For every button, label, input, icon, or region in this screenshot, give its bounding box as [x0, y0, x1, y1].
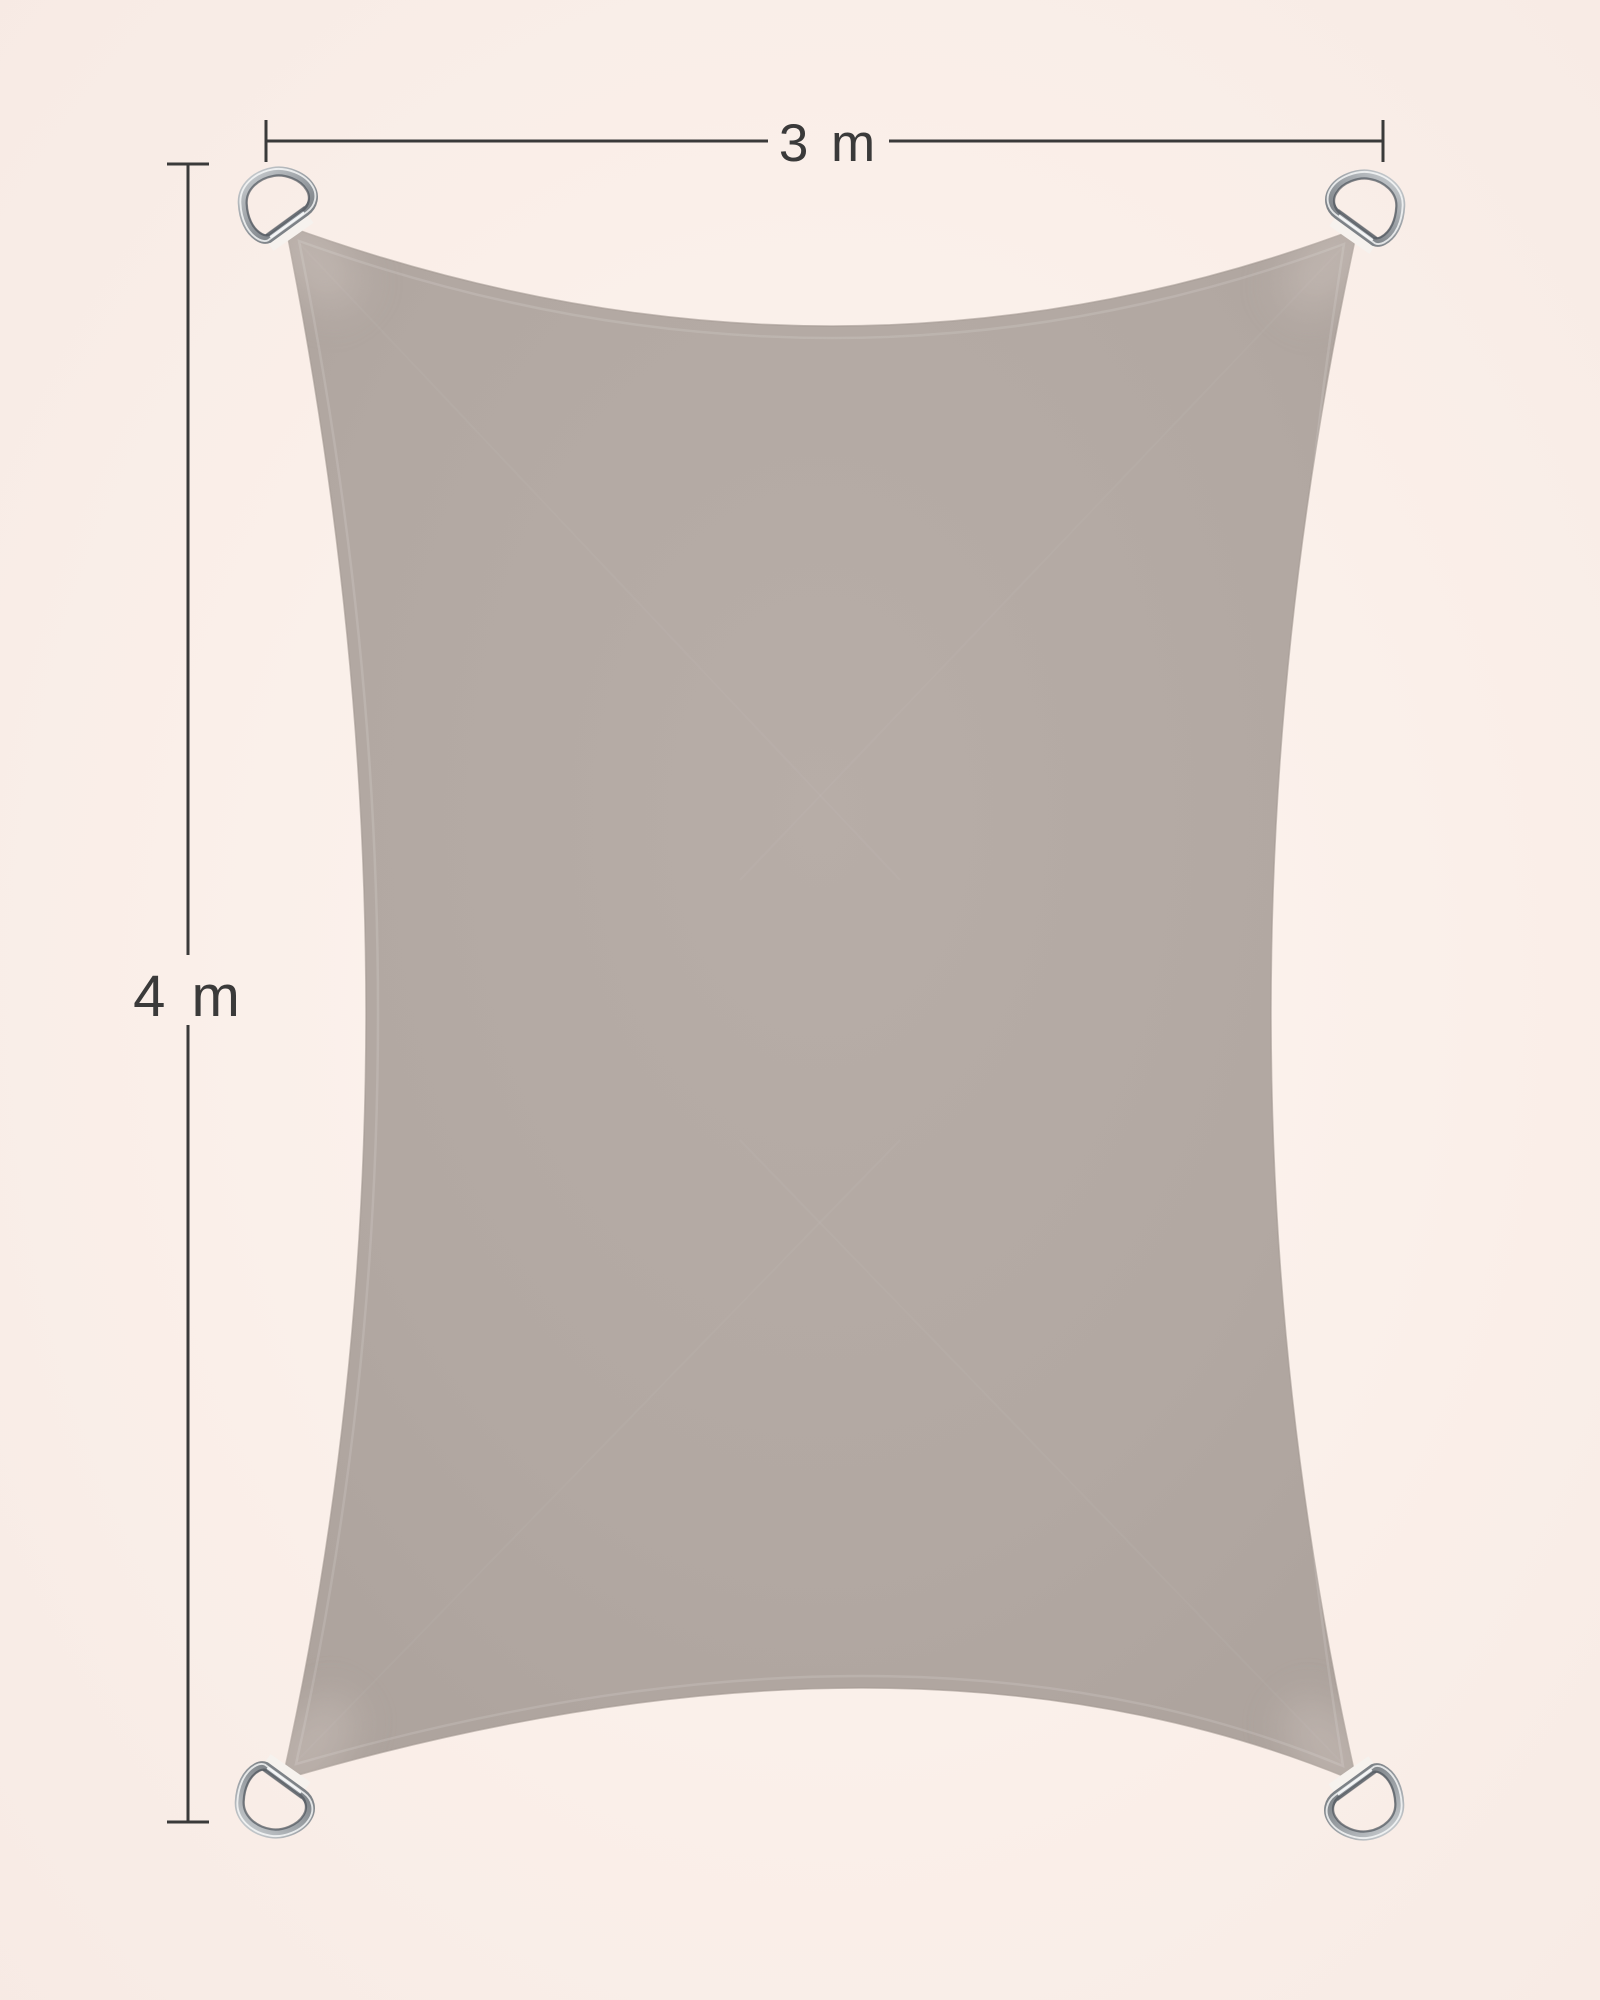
svg-text:3 m: 3 m: [779, 114, 879, 173]
svg-text:4 m: 4 m: [133, 964, 245, 1029]
